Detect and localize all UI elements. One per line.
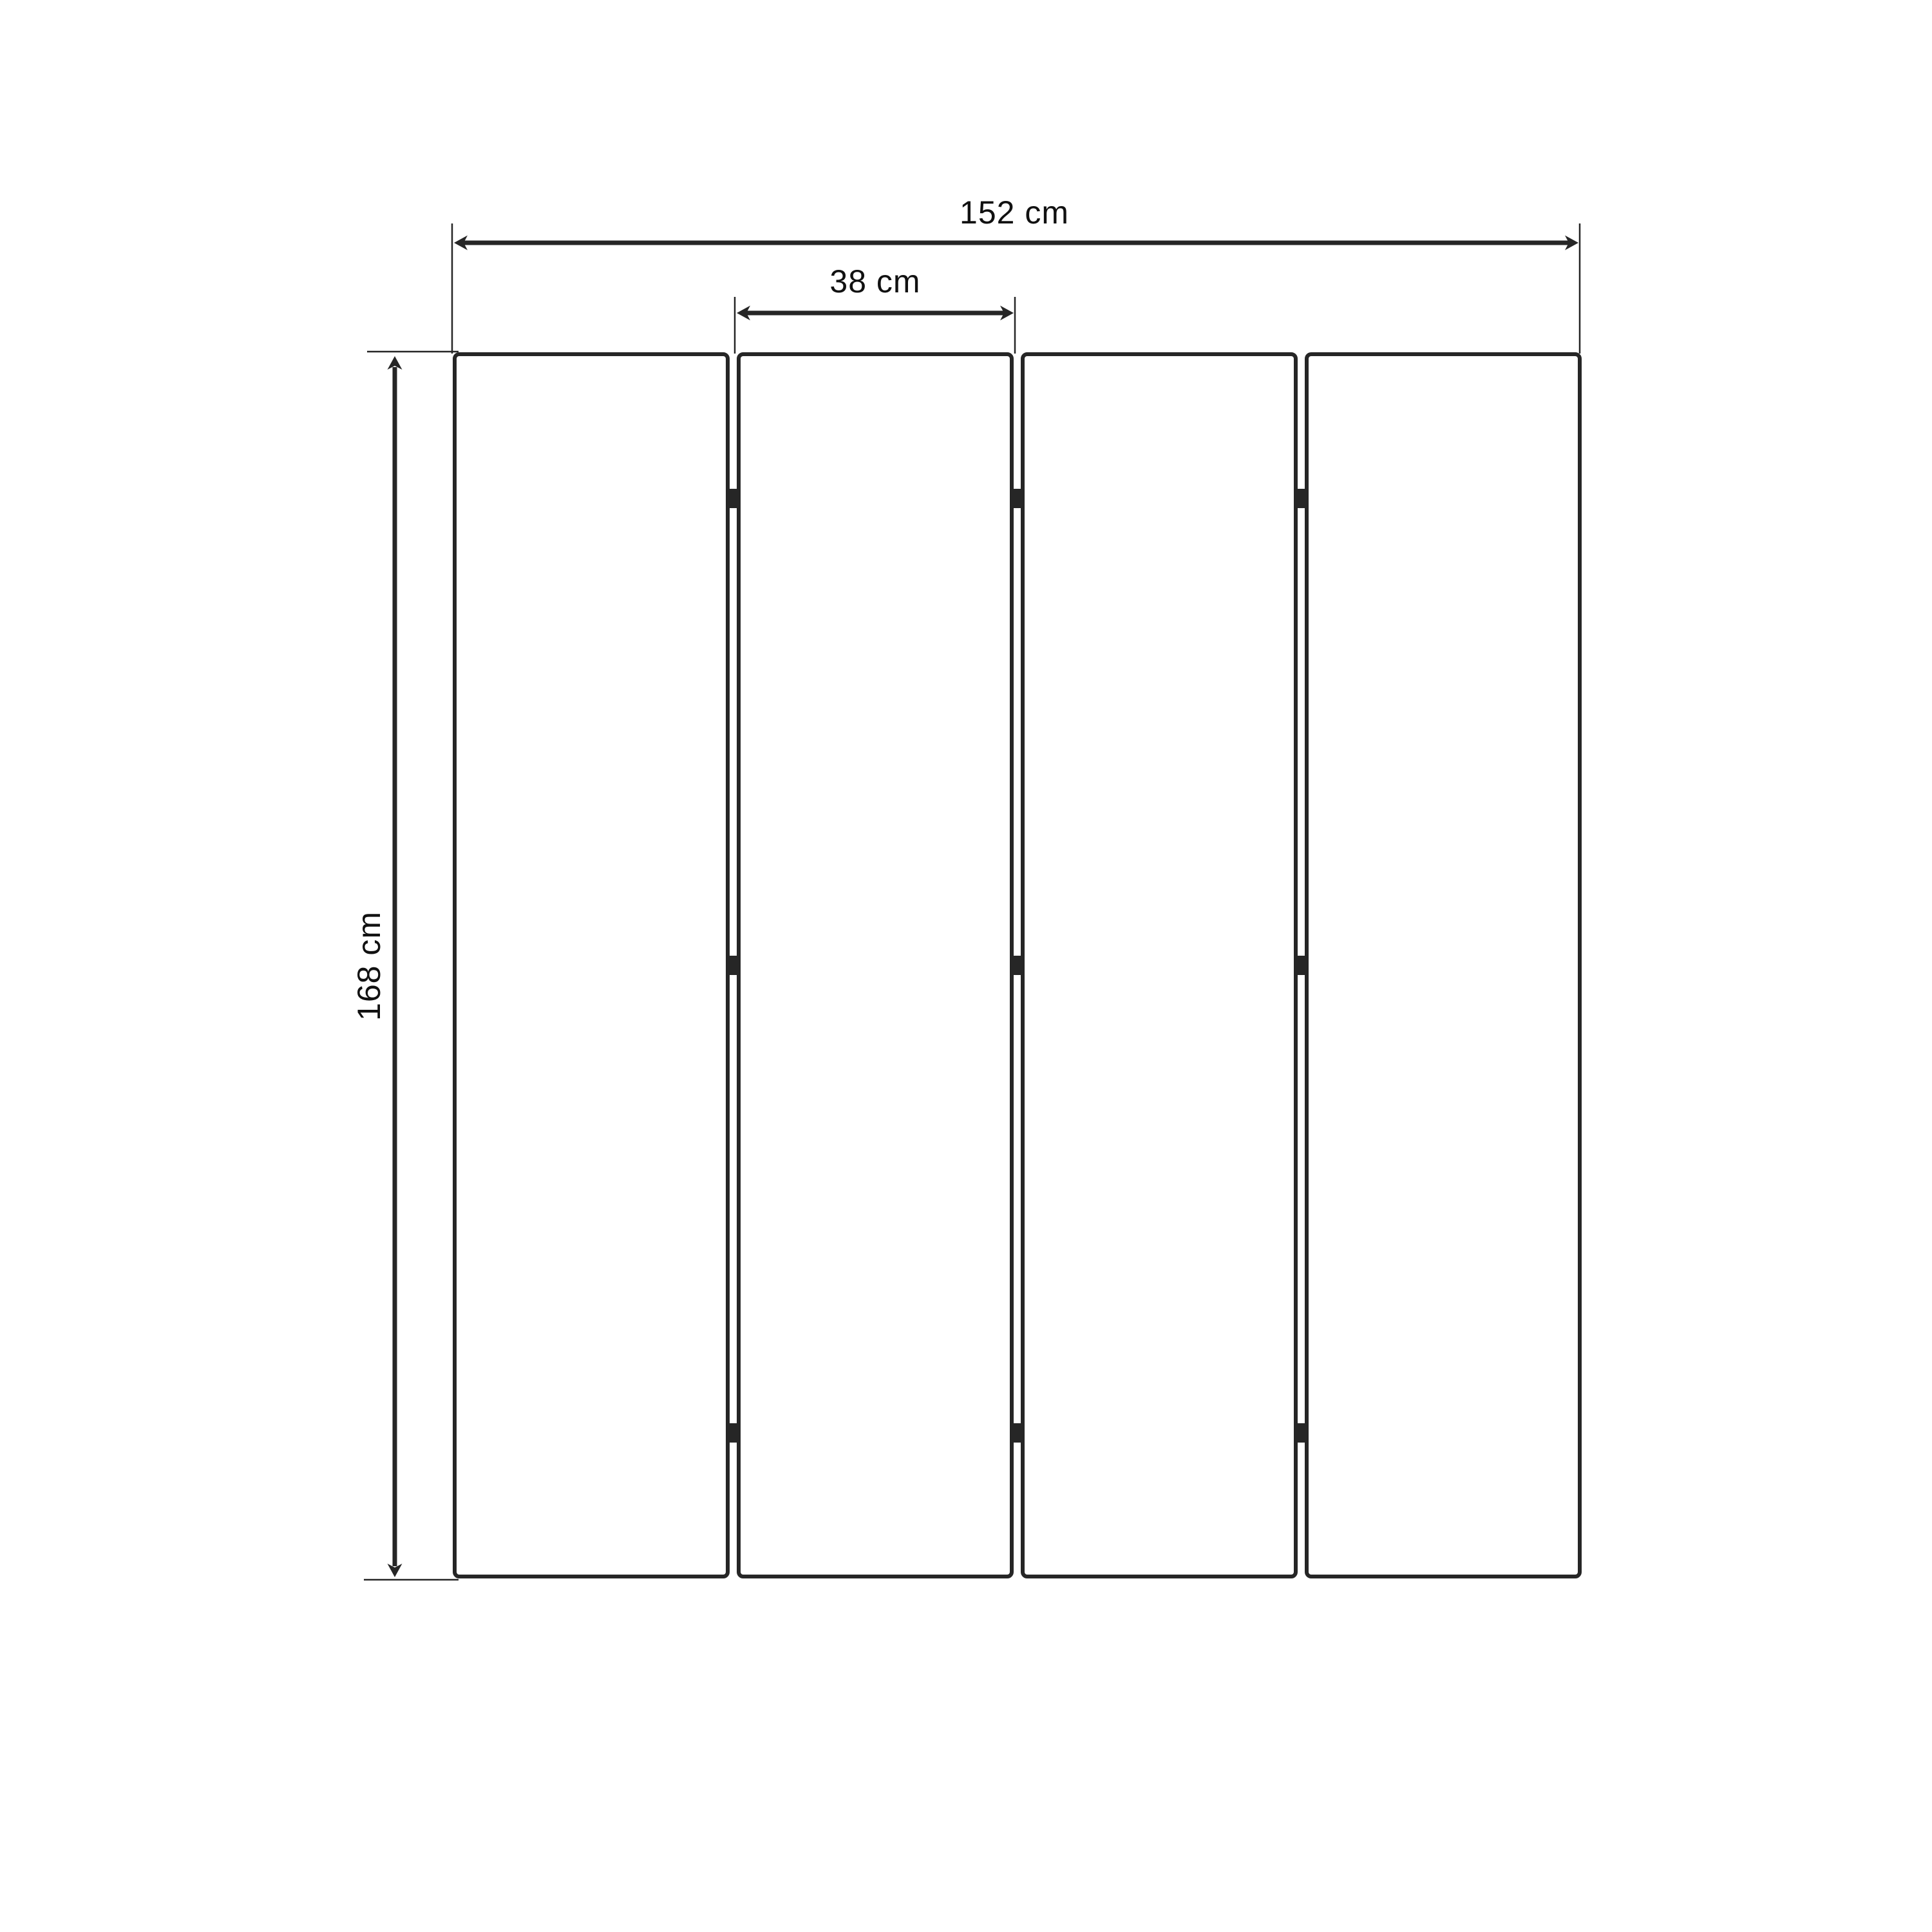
dimension-lines-layer [0, 0, 1932, 1932]
dimension-drawing: 152 cm 38 cm 168 cm [0, 0, 1932, 1932]
dim-label-height: 168 cm [353, 911, 385, 1021]
dim-label-panel-width: 38 cm [829, 265, 920, 298]
dim-label-total-width: 152 cm [960, 196, 1069, 229]
